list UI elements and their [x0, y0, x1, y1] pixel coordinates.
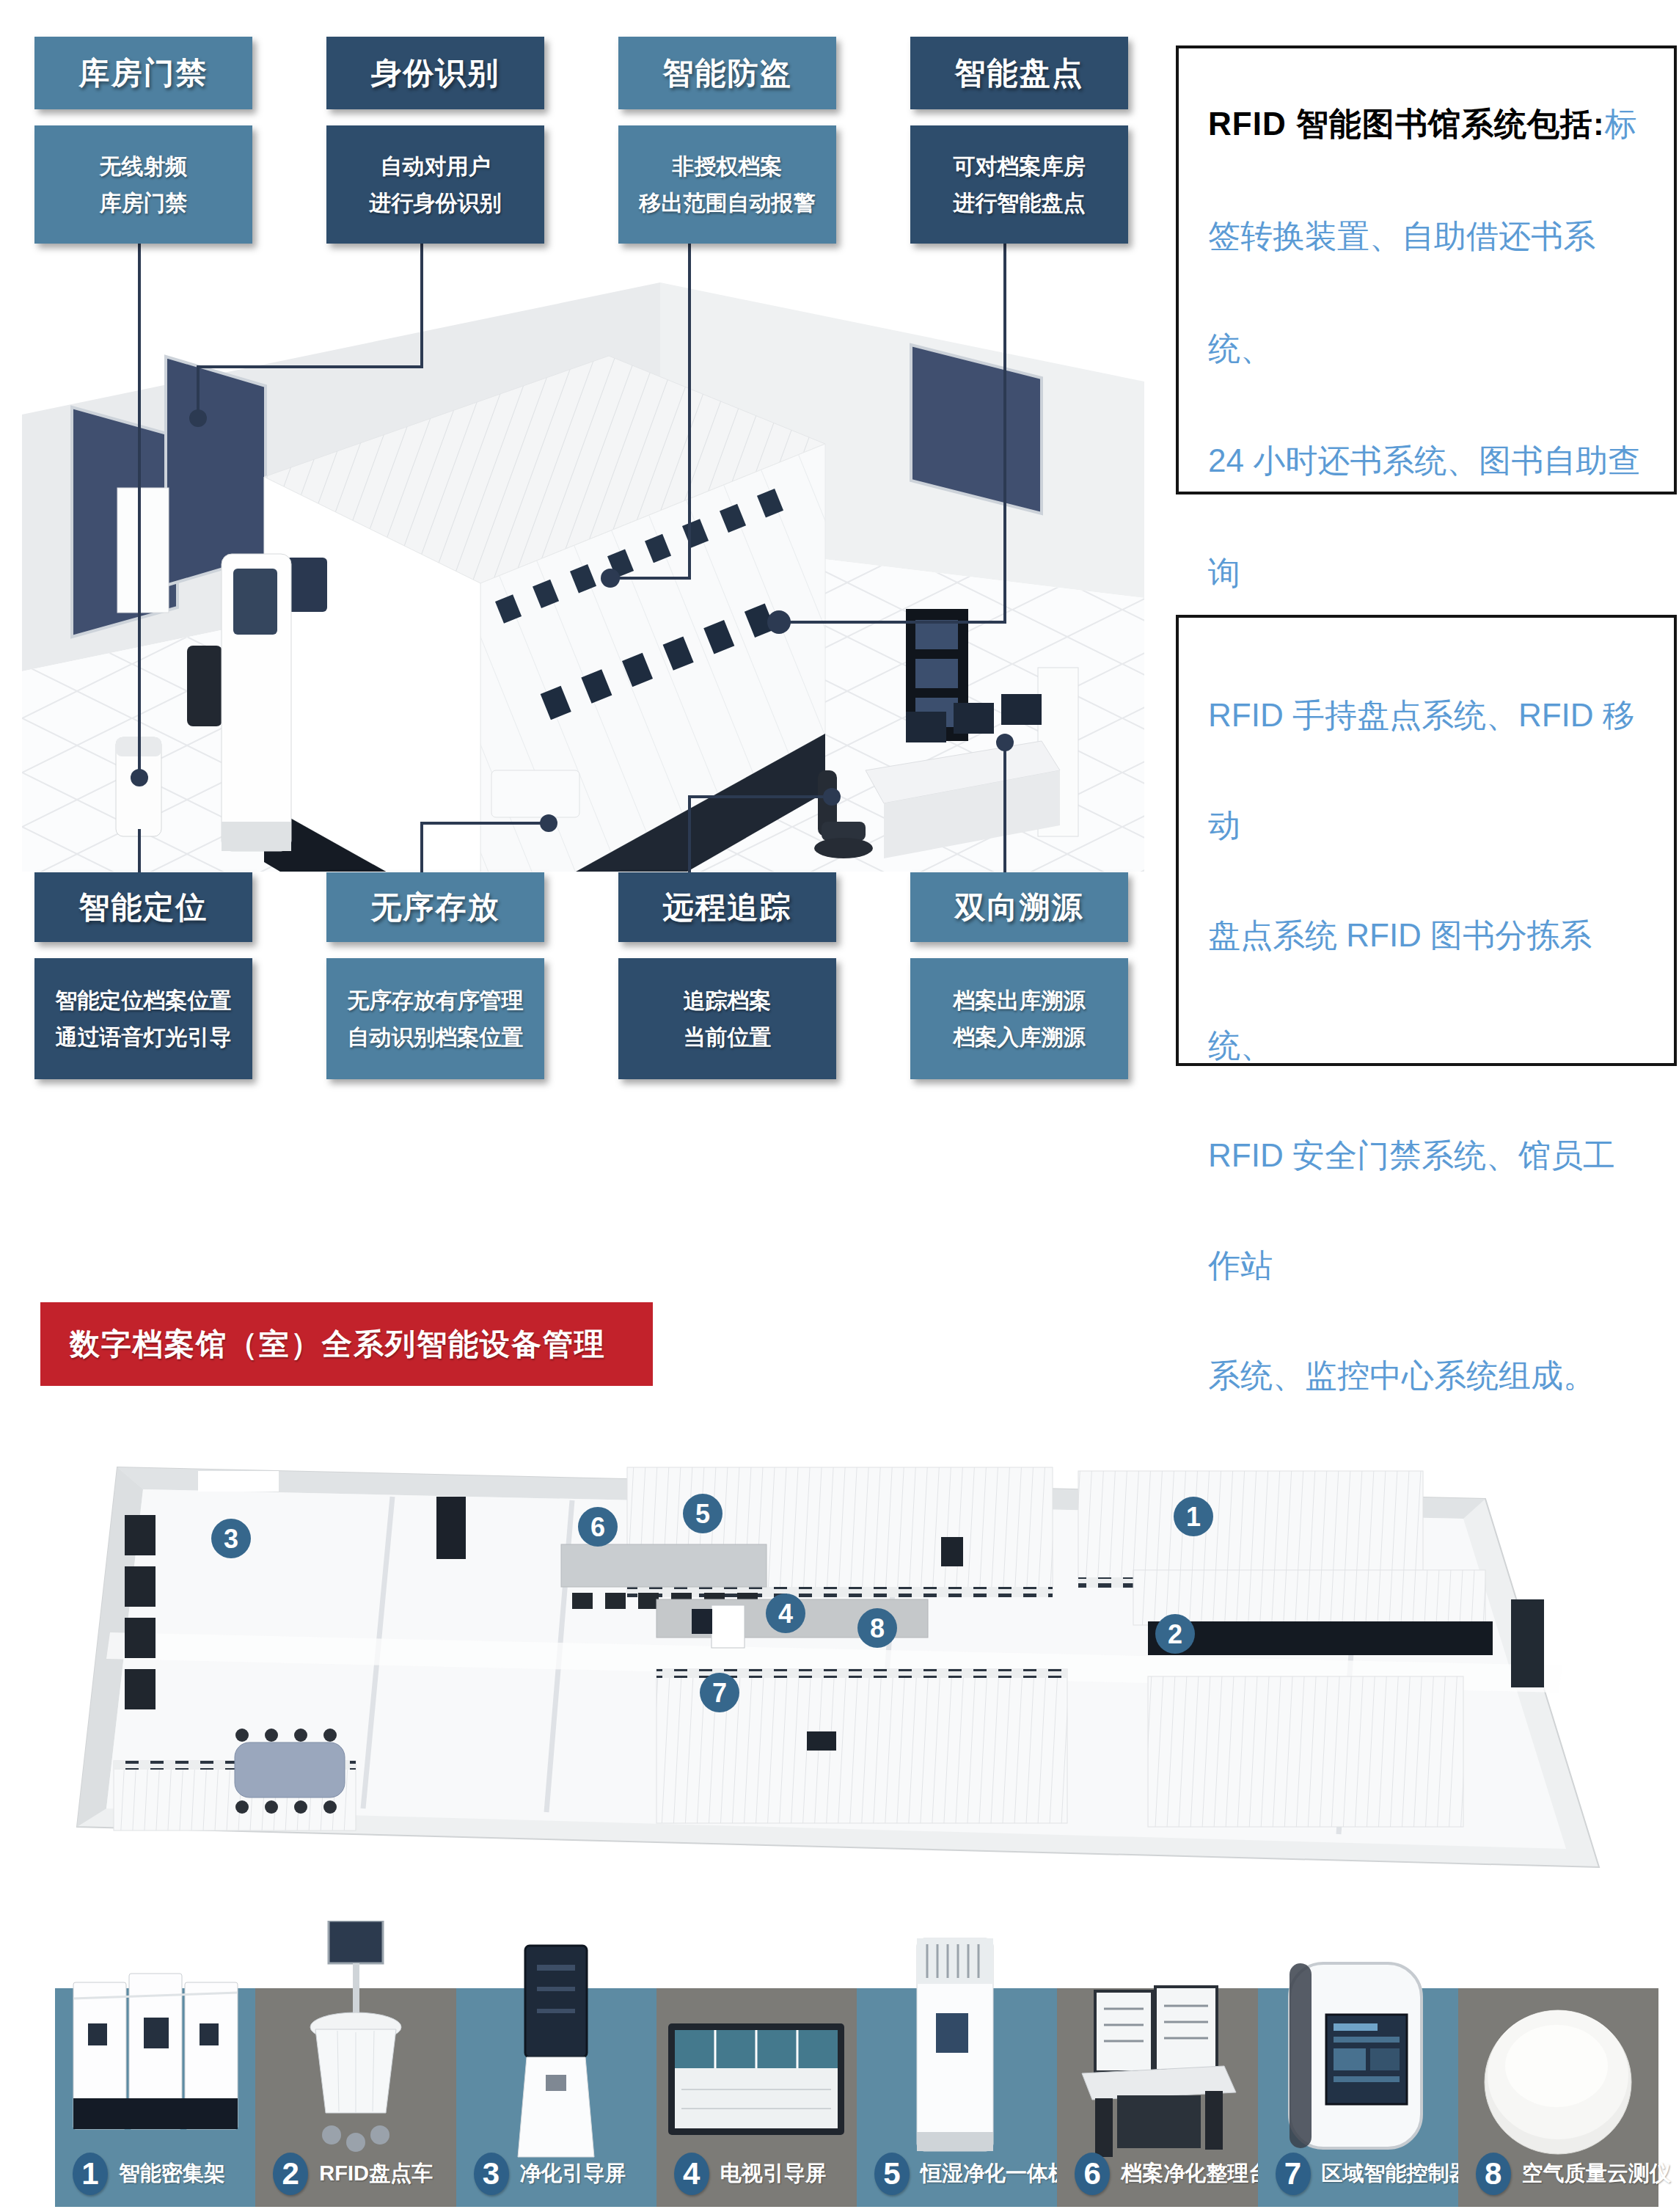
equipment-label-row: 7 区域智能控制器 [1258, 2153, 1458, 2195]
equipment-number: 5 [874, 2153, 910, 2195]
equipment-cell-rfid-cart: 2 RFID盘点车 [255, 1988, 456, 2207]
marker-8: 8 [857, 1608, 897, 1648]
equipment-cell-humidity-purifier: 5 恒湿净化一体机 [857, 1988, 1057, 2207]
feature-title: 智能防盗 [618, 37, 836, 109]
equipment-strip: 1 智能密集架 2 RFID盘点车 3 净化引导屏 [55, 1988, 1658, 2207]
rack-screen [915, 659, 958, 688]
info-panel-rfid-library: RFID 智能图书馆系统包括:标 签转换装置、自助借还书系统、 24 小时还书系… [1176, 45, 1677, 494]
positioning-kiosk-top [116, 737, 161, 756]
desk-monitor [906, 712, 946, 742]
equipment-name: 档案净化整理台 [1121, 2159, 1270, 2189]
equipment-number: 4 [674, 2153, 709, 2195]
humidity-purifier-image [910, 1925, 1005, 2160]
shelf-block [1133, 1570, 1485, 1625]
marker-3: 3 [211, 1519, 251, 1558]
equipment-label-row: 1 智能密集架 [55, 2153, 255, 2195]
marker-1: 1 [1174, 1497, 1213, 1536]
equipment-cell-zone-controller: 7 区域智能控制器 [1258, 1988, 1458, 2207]
guide-kiosk-image [505, 1943, 607, 2163]
feature-title: 库房门禁 [34, 37, 252, 109]
equipment-label-row: 2 RFID盘点车 [255, 2153, 456, 2195]
shelving-end-screen [286, 558, 327, 612]
equipment-label-row: 4 电视引导屏 [656, 2153, 857, 2195]
feature-desc: 自动对用户 进行身份识别 [326, 125, 544, 244]
svg-text:7: 7 [712, 1678, 727, 1708]
wall-screen-left-2 [166, 357, 266, 585]
info-panel-rfid-systems: RFID 手持盘点系统、RFID 移动 盘点系统 RFID 图书分拣系统、 RF… [1176, 615, 1677, 1066]
equipment-cell-compact-shelving: 1 智能密集架 [55, 1988, 255, 2207]
equipment-cell-tv-guide-screen: 4 电视引导屏 [656, 1988, 857, 2207]
rfid-cart-image [286, 1921, 425, 2163]
equipment-cell-purify-guide-screen: 3 净化引导屏 [456, 1988, 656, 2207]
equipment-cell-air-quality-sensor: 8 空气质量云测仪 [1458, 1988, 1658, 2207]
equipment-label-row: 8 空气质量云测仪 [1458, 2153, 1658, 2195]
feature-desc: 可对档案库房 进行智能盘点 [910, 125, 1128, 244]
rack-screen [915, 620, 958, 649]
equipment-name: 净化引导屏 [520, 2159, 626, 2189]
feature-smart-inventory: 智能盘点 可对档案库房 进行智能盘点 [910, 37, 1128, 244]
svg-text:3: 3 [224, 1524, 238, 1554]
marker-5: 5 [683, 1494, 723, 1533]
svg-text:5: 5 [695, 1499, 710, 1529]
feature-title: 智能定位 [34, 872, 252, 942]
feature-desc: 智能定位档案位置 通过语音灯光引导 [34, 958, 252, 1079]
equipment-label-row: 6 档案净化整理台 [1057, 2153, 1257, 2195]
desk-monitor [954, 703, 994, 734]
feature-desc: 档案出库溯源 档案入库溯源 [910, 958, 1128, 1079]
equipment-name: 智能密集架 [119, 2159, 225, 2189]
equipment-name: RFID盘点车 [319, 2159, 433, 2189]
feature-title: 远程追踪 [618, 872, 836, 942]
info-panel-text: RFID 手持盘点系统、RFID 移动 盘点系统 RFID 图书分拣系统、 RF… [1208, 660, 1645, 1431]
marker-4: 4 [766, 1594, 805, 1633]
feature-desc: 无线射频 库房门禁 [34, 125, 252, 244]
section-banner: 数字档案馆（室）全系列智能设备管理 [40, 1302, 653, 1386]
feature-title: 无序存放 [326, 872, 544, 942]
shelf-block [1078, 1471, 1423, 1581]
equipment-name: 电视引导屏 [720, 2159, 827, 2189]
svg-text:1: 1 [1186, 1502, 1201, 1532]
info-panel-body: RFID 手持盘点系统、RFID 移动 盘点系统 RFID 图书分拣系统、 RF… [1208, 697, 1635, 1393]
equipment-number: 3 [474, 2153, 509, 2195]
air-purifier-base [222, 822, 291, 851]
feature-smart-positioning: 智能定位 智能定位档案位置 通过语音灯光引导 [34, 872, 252, 1079]
entrance-gap [198, 1471, 279, 1492]
marker-7: 7 [700, 1673, 739, 1712]
equipment-cell-archive-purify-desk: 6 档案净化整理台 [1057, 1988, 1257, 2207]
purify-desk-image [1073, 1984, 1242, 2164]
equipment-number: 1 [73, 2153, 108, 2195]
equipment-number: 6 [1075, 2153, 1110, 2195]
feature-remote-tracking: 远程追踪 追踪档案 当前位置 [618, 872, 836, 1079]
feature-anti-theft: 智能防盗 非授权档案 移出范围自动报警 [618, 37, 836, 244]
zone-controller-image [1281, 1959, 1435, 2157]
equipment-name: 空气质量云测仪 [1522, 2159, 1671, 2189]
reader-desk [491, 770, 579, 817]
equipment-name: 恒湿净化一体机 [921, 2159, 1069, 2189]
equipment-label-row: 3 净化引导屏 [456, 2153, 656, 2195]
equipment-number: 2 [273, 2153, 308, 2195]
air-sensor-image [1477, 1996, 1639, 2164]
feature-bidirectional-tracing: 双向溯源 档案出库溯源 档案入库溯源 [910, 872, 1128, 1079]
floorplan-illustration: 1 2 3 4 5 6 7 8 [48, 1427, 1632, 1926]
feature-title: 双向溯源 [910, 872, 1128, 942]
chair-base [814, 838, 873, 858]
air-purifier-screen [233, 569, 277, 635]
equipment-name: 区域智能控制器 [1322, 2159, 1471, 2189]
feature-desc: 追踪档案 当前位置 [618, 958, 836, 1079]
shelf-block [1148, 1676, 1463, 1827]
svg-text:8: 8 [870, 1613, 885, 1643]
desk-monitor [1001, 694, 1042, 725]
feature-title: 智能盘点 [910, 37, 1128, 109]
feature-unordered-storage: 无序存放 无序存放有序管理 自动识别档案位置 [326, 872, 544, 1079]
feature-desc: 无序存放有序管理 自动识别档案位置 [326, 958, 544, 1079]
marker-6: 6 [578, 1507, 618, 1547]
brochure-page: { "features_top": [ {"title": "库房门禁", "d… [0, 0, 1679, 2212]
archive-room-photo [22, 257, 1144, 872]
feature-desc: 非授权档案 移出范围自动报警 [618, 125, 836, 244]
marker-2: 2 [1155, 1614, 1195, 1654]
svg-text:4: 4 [778, 1599, 793, 1629]
equipment-number: 8 [1476, 2153, 1511, 2195]
wall-cabinet [117, 488, 169, 613]
equipment-number: 7 [1276, 2153, 1311, 2195]
feature-identity-recognition: 身份识别 自动对用户 进行身份识别 [326, 37, 544, 244]
feature-warehouse-access: 库房门禁 无线射频 库房门禁 [34, 37, 252, 244]
compact-shelving-image [67, 1953, 244, 2140]
tv-screen-image [668, 2023, 844, 2141]
svg-text:6: 6 [590, 1512, 605, 1542]
info-panel-lead: RFID 智能图书馆系统包括: [1208, 106, 1605, 142]
shelf-dark-base [1148, 1621, 1493, 1655]
feature-title: 身份识别 [326, 37, 544, 109]
bin [187, 646, 222, 726]
equipment-label-row: 5 恒湿净化一体机 [857, 2153, 1057, 2195]
info-panel-body: 标 签转换装置、自助借还书系统、 24 小时还书系统、图书自助查询 系统。 [1208, 106, 1640, 703]
svg-text:2: 2 [1168, 1619, 1182, 1649]
